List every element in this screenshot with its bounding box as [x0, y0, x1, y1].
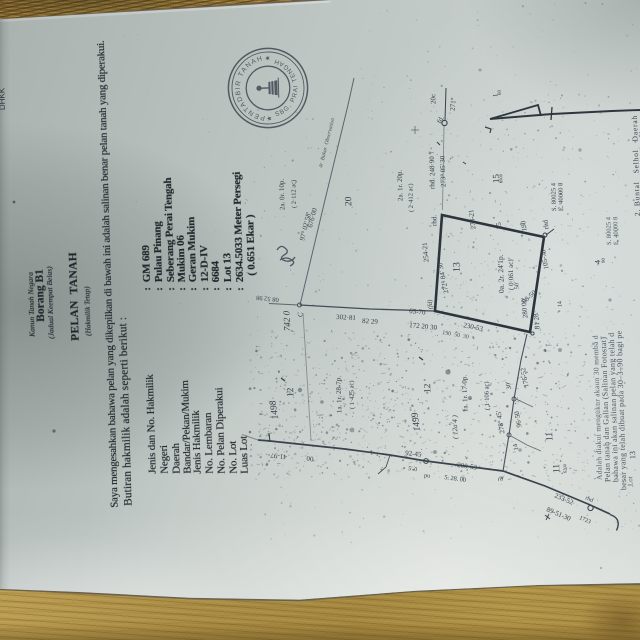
svg-text:89-51-30: 89-51-30	[545, 505, 572, 523]
svg-text:( 2·112 ac): ( 2·112 ac)	[290, 180, 298, 208]
svg-text:C: C	[296, 312, 304, 317]
svg-text:742 0: 742 0	[281, 310, 292, 331]
svg-text:190 50 30: 190 50 30	[442, 330, 470, 341]
svg-text:Lot: Lot	[626, 476, 634, 486]
svg-text:676·00: 676·00	[306, 207, 319, 229]
svg-text:1a. 1r. 28-7p.: 1a. 1r. 28-7p.	[334, 376, 343, 414]
svg-text:273-21: 273-21	[467, 209, 477, 230]
svg-text:2a. 1r. 20p.: 2a. 1r. 20p.	[396, 169, 405, 201]
svg-text:13: 13	[628, 451, 637, 459]
svg-text:1a. 1r. 17-0p.: 1a. 1r. 17-0p.	[460, 375, 469, 413]
svg-text:★: ★	[265, 115, 273, 121]
svg-text:5. 28. 00: 5. 28. 00	[444, 474, 467, 484]
svg-text:302·81: 302·81	[336, 313, 357, 322]
svg-text:★: ★	[264, 55, 272, 61]
svg-text:( 12a 4 ): ( 12a 4 )	[451, 414, 460, 439]
svg-text:DHKK: DHKK	[0, 87, 7, 110]
svg-text:pu: pu	[424, 473, 431, 480]
svg-text:272° 84' 30: 272° 84' 30	[436, 261, 450, 294]
svg-text:20c: 20c	[429, 94, 437, 104]
svg-text:271°: 271°	[449, 97, 458, 111]
svg-text:11: 11	[545, 432, 555, 442]
svg-text:25: 25	[495, 221, 504, 229]
svg-text:172 20 30: 172 20 30	[409, 321, 438, 332]
svg-text:( 2·412 ac): ( 2·412 ac)	[407, 183, 415, 212]
svg-text:20: 20	[344, 196, 354, 206]
svg-text:90: 90	[602, 257, 607, 263]
svg-text:65-70: 65-70	[409, 307, 427, 317]
svg-text:233-52: 233-52	[553, 491, 575, 506]
svg-text:14: 14	[557, 301, 564, 308]
svg-text:82 29: 82 29	[362, 317, 379, 326]
svg-text:08 52 98: 08 52 98	[256, 294, 279, 303]
svg-text:278° 45': 278° 45'	[495, 410, 507, 434]
svg-text:rhd.: rhd.	[430, 215, 438, 227]
svg-text:81 28: 81 28	[532, 313, 541, 330]
svg-text:190: 190	[519, 220, 528, 232]
svg-text:13: 13	[452, 262, 463, 272]
svg-text:4r Bakar Observation: 4r Bakar Observation	[317, 117, 336, 168]
svg-text:rhd: rhd	[541, 219, 550, 230]
svg-text:12: 12	[423, 383, 433, 393]
svg-text:(d: (d	[498, 475, 505, 483]
svg-text:fd.: fd.	[435, 114, 446, 125]
svg-text:248·90 ⤒: 248·90 ⤒	[428, 151, 437, 176]
svg-text:96·50: 96·50	[513, 410, 524, 428]
svg-text:254-21: 254-21	[421, 242, 431, 263]
svg-text:2a. 0r. 10p.: 2a. 0r. 10p.	[278, 178, 287, 210]
svg-text:(fd): (fd)	[427, 300, 434, 310]
svg-text:rhd.: rhd.	[428, 178, 436, 190]
svg-text:273° 05' 30: 273° 05' 30	[439, 155, 448, 187]
svg-text:'00: '00	[306, 454, 316, 463]
svg-text:“: “	[559, 459, 566, 462]
svg-text:1723: 1723	[578, 515, 591, 525]
svg-text:60: 60	[498, 89, 503, 95]
svg-text:1499: 1499	[410, 412, 423, 433]
svg-text:11: 11	[552, 464, 562, 474]
